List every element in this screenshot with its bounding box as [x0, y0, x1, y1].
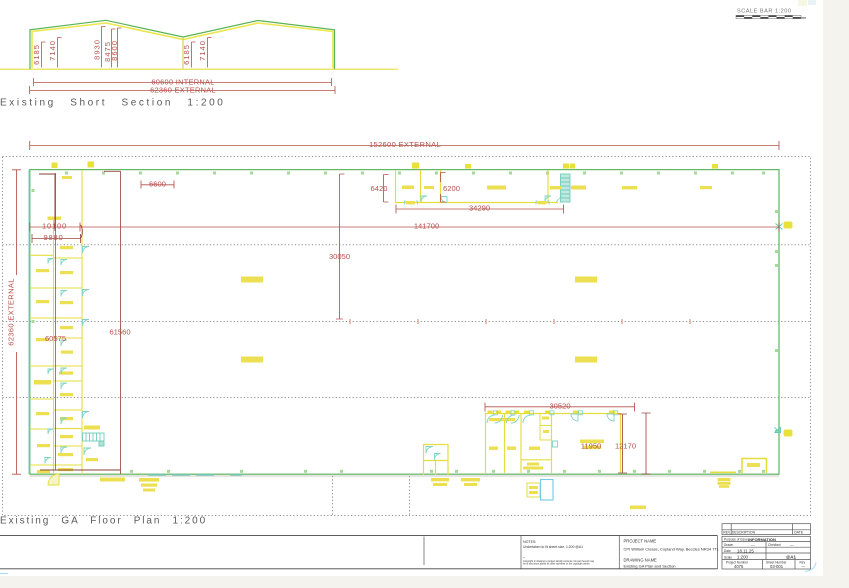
- svg-text:10100: 10100: [42, 222, 67, 231]
- svg-text:6600: 6600: [149, 180, 166, 189]
- svg-text:34290: 34290: [469, 204, 490, 213]
- svg-text:11950: 11950: [581, 442, 602, 451]
- svg-text:03-001: 03-001: [770, 564, 784, 569]
- svg-text:12170: 12170: [615, 442, 636, 451]
- svg-text:Rev: Rev: [800, 560, 806, 564]
- svg-text:18.11.25: 18.11.25: [737, 548, 754, 553]
- svg-text:6200: 6200: [443, 184, 460, 193]
- svg-text:DRAWING NAME: DRAWING NAME: [624, 558, 658, 563]
- svg-text:30520: 30520: [549, 402, 570, 411]
- svg-text:—: —: [790, 543, 794, 547]
- svg-text:1:200: 1:200: [737, 555, 749, 560]
- svg-text:Date: Date: [724, 549, 731, 553]
- svg-text:7140: 7140: [48, 40, 57, 61]
- svg-text:INFORMATION: INFORMATION: [748, 537, 776, 542]
- svg-text:PROJECT NAME: PROJECT NAME: [624, 539, 657, 544]
- svg-text:REV. DESCRIPTION: REV. DESCRIPTION: [723, 531, 755, 535]
- svg-text:Drawn: Drawn: [724, 543, 733, 547]
- svg-text:62360 EXTERNAL: 62360 EXTERNAL: [7, 278, 16, 346]
- svg-text:Existing Short Section 1:200: Existing Short Section 1:200: [0, 98, 225, 109]
- svg-text:—: —: [751, 543, 755, 547]
- svg-text:Checked: Checked: [768, 543, 781, 547]
- svg-text:7140: 7140: [198, 40, 207, 61]
- svg-text:60575: 60575: [45, 334, 66, 343]
- svg-text:62360 EXTERNAL: 62360 EXTERNAL: [150, 85, 216, 94]
- svg-text:9880: 9880: [43, 233, 63, 242]
- svg-text:CPI William Cloase, Copland Wa: CPI William Cloase, Copland Way, Beccles…: [624, 547, 720, 552]
- svg-text:Undertaken to fit sheet size,: Undertaken to fit sheet size, 1:200 @A1: [523, 545, 583, 549]
- svg-text:152600 EXTERNAL: 152600 EXTERNAL: [369, 140, 441, 149]
- svg-text:Existing GA Plan and Section: Existing GA Plan and Section: [624, 563, 676, 568]
- svg-text:@A1: @A1: [786, 555, 796, 560]
- svg-text:Scale: Scale: [724, 555, 732, 559]
- svg-text:6185: 6185: [32, 44, 41, 65]
- svg-text:30050: 30050: [329, 252, 350, 261]
- svg-text:SCALE BAR 1:200: SCALE BAR 1:200: [737, 9, 791, 15]
- svg-text:—: —: [802, 565, 806, 569]
- svg-text:4075: 4075: [734, 564, 744, 569]
- svg-text:NOTES:: NOTES:: [523, 540, 536, 544]
- svg-text:61560: 61560: [109, 328, 130, 337]
- svg-text:6420: 6420: [371, 184, 388, 193]
- svg-text:6185: 6185: [182, 44, 191, 65]
- svg-text:8600: 8600: [110, 40, 119, 61]
- svg-text:Existing GA Floor Plan 1:200: Existing GA Floor Plan 1:200: [0, 516, 207, 527]
- svg-text:141700: 141700: [414, 222, 439, 231]
- svg-text:Purpose of issue: Purpose of issue: [724, 538, 748, 542]
- svg-text:8930: 8930: [93, 39, 102, 60]
- svg-text:be of any issue above its othe: be of any issue above its other activiti…: [523, 563, 590, 566]
- svg-text:>: >: [523, 556, 525, 560]
- svg-text:DATE: DATE: [794, 531, 804, 535]
